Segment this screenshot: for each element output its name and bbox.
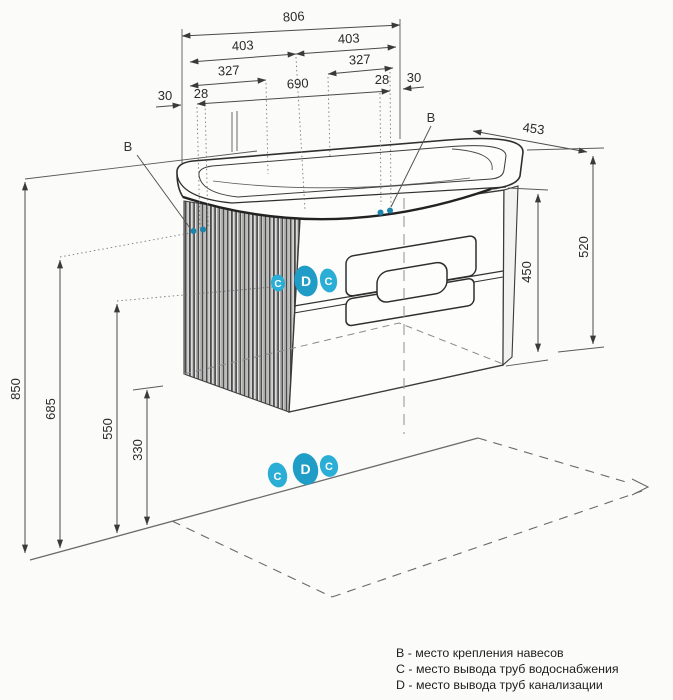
- hanger-label-b-right: B: [427, 110, 436, 125]
- legend-line-b: B - место крепления навесов: [396, 646, 564, 660]
- hanger-dot-icon: [378, 210, 384, 216]
- dim-label-690: 690: [286, 75, 309, 91]
- cabinet-fluted-side-panel: [184, 201, 300, 412]
- dim-label-850: 850: [8, 378, 23, 400]
- marker-wall-c1-letter: C: [274, 471, 282, 483]
- dim-label-550: 550: [100, 418, 115, 440]
- marker-front-d-letter: D: [301, 273, 311, 289]
- dim-label-806: 806: [282, 8, 305, 24]
- dim-label-28-right: 28: [375, 72, 389, 87]
- marker-wall-c2-letter: C: [325, 461, 333, 473]
- legend-line-d: D - место вывода труб канализации: [396, 678, 603, 692]
- dim-label-453: 453: [522, 120, 545, 138]
- dim-label-403-left: 403: [231, 37, 254, 53]
- dim-label-327-right: 327: [348, 51, 371, 67]
- marker-wall-d-letter: D: [300, 461, 310, 477]
- dim-label-330: 330: [130, 439, 145, 461]
- marker-front-c1-letter: C: [274, 279, 281, 290]
- legend-line-c: C - место вывода труб водоснабжения: [396, 662, 619, 676]
- dim-label-450: 450: [519, 261, 534, 283]
- dim-label-30-left: 30: [158, 88, 172, 103]
- vanity-installation-drawing: 806 403 403 327 327 690 30 28 28 30 453 …: [0, 0, 673, 700]
- hanger-dot-icon: [200, 227, 206, 233]
- hanger-label-b-left: B: [124, 139, 133, 154]
- dim-label-520: 520: [576, 236, 591, 258]
- technical-drawing-page: 806 403 403 327 327 690 30 28 28 30 453 …: [0, 0, 673, 700]
- dim-label-685: 685: [43, 398, 58, 420]
- dim-label-30-right: 30: [407, 70, 421, 85]
- dim-label-28-left: 28: [194, 86, 208, 101]
- marker-front-c2-letter: C: [325, 276, 333, 288]
- hanger-dot-icon: [191, 228, 197, 234]
- hanger-dot-icon: [387, 208, 393, 214]
- dim-label-327-left: 327: [217, 62, 240, 78]
- dim-label-403-right: 403: [337, 30, 360, 46]
